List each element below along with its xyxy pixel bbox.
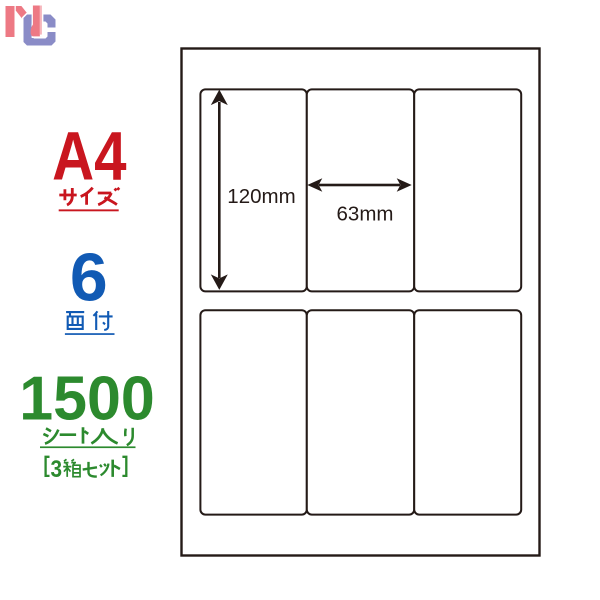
svg-text:63mm: 63mm (337, 202, 394, 225)
svg-text:3: 3 (51, 454, 63, 482)
svg-text:1500: 1500 (19, 364, 155, 434)
svg-text:6: 6 (70, 240, 108, 316)
svg-text:A4: A4 (52, 118, 127, 195)
svg-text:120mm: 120mm (227, 185, 295, 208)
